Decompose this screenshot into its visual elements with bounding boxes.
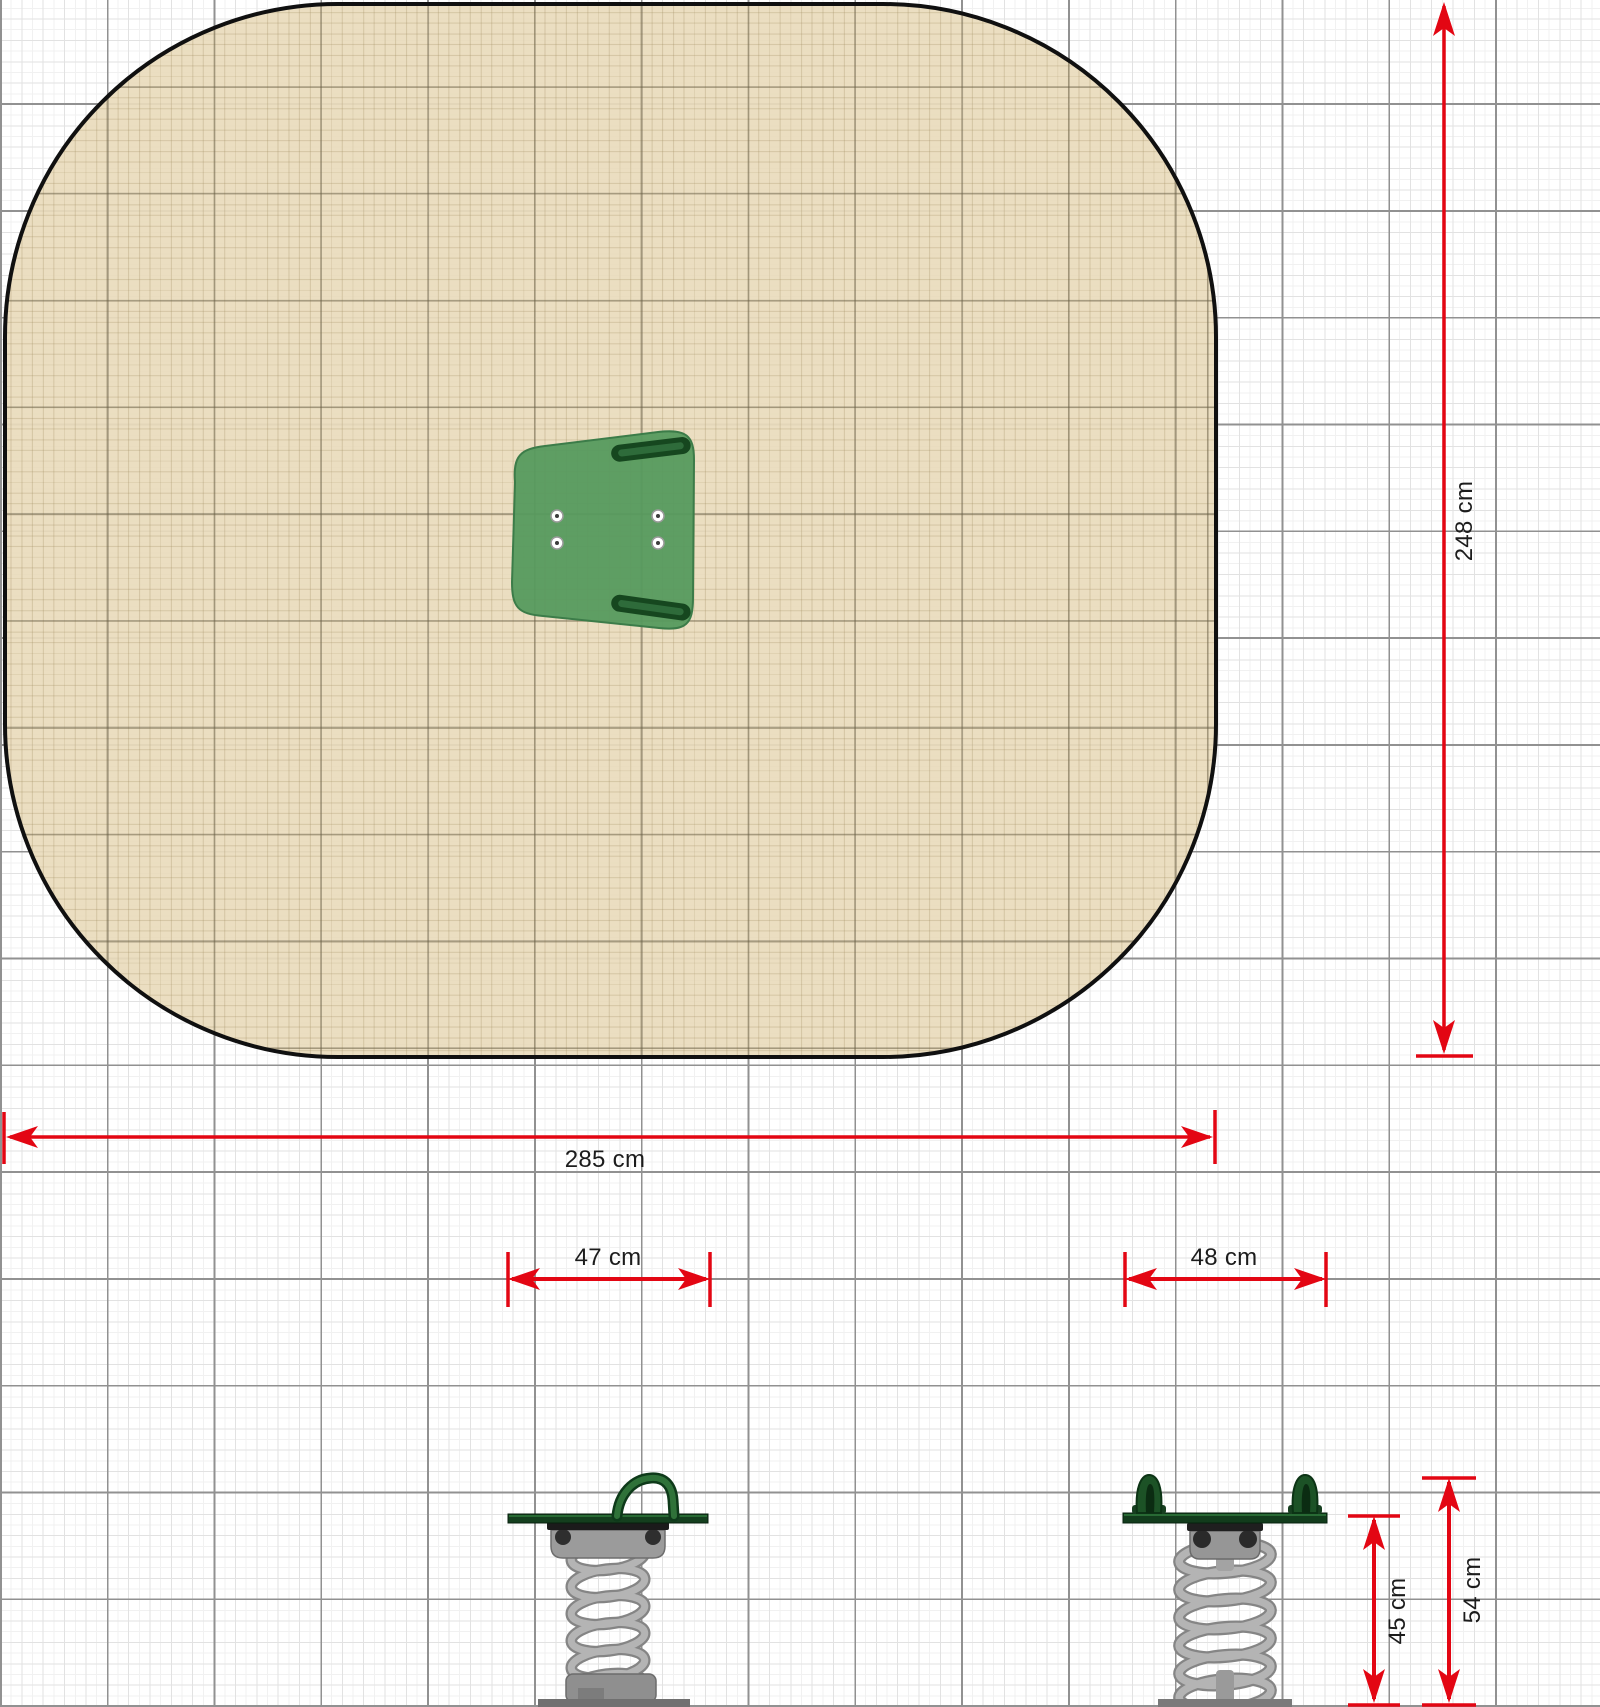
spring-front [1158,1539,1292,1707]
handle-side [617,1478,674,1516]
side-width-label: 47 cm [575,1244,642,1272]
seat-plate-front [1123,1513,1327,1523]
drawing-canvas: 285 cm 248 cm 47 cm 48 cm 45 cm 54 cm [0,0,1600,1707]
spring-side [570,1538,647,1707]
handle-front-left [1132,1475,1166,1514]
handle-front-right [1288,1475,1322,1514]
spring-rocker-front-view [1100,1465,1350,1707]
handle-height-label: 54 cm [1459,1557,1487,1624]
clamp-front [1187,1523,1263,1571]
safety-zone [3,2,1218,1059]
spring-rocker-side-view [480,1465,730,1707]
zone-width-label: 285 cm [565,1146,646,1174]
seat-plate-side [508,1514,708,1523]
seat-height-label: 45 cm [1384,1578,1412,1645]
front-width-label: 48 cm [1191,1244,1258,1272]
clamp-side [547,1522,669,1558]
zone-depth-label: 248 cm [1451,481,1479,562]
base-side [538,1674,690,1707]
